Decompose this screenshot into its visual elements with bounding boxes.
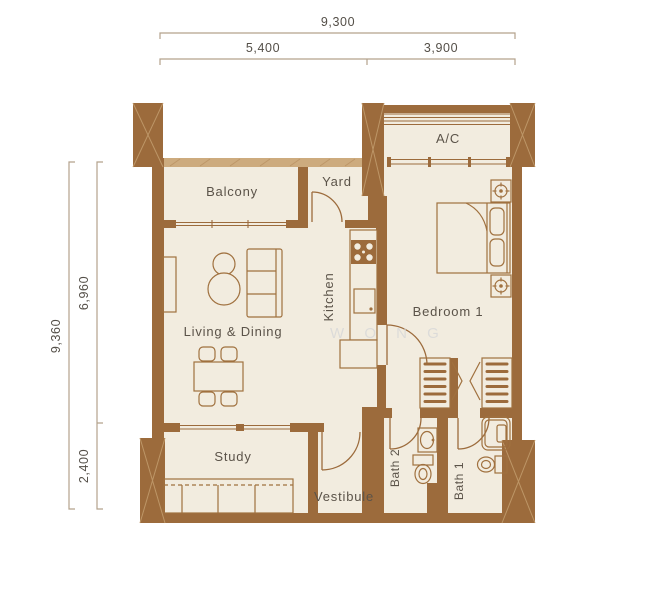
dim-top-left: 5,400 xyxy=(246,41,280,55)
dining-table xyxy=(194,362,243,391)
dimension-top: 9,300 5,400 3,900 xyxy=(160,15,515,65)
wall-top-louvre xyxy=(164,158,362,167)
bedroom-window-tick xyxy=(428,157,431,167)
dim-side-upper: 6,960 xyxy=(77,276,91,310)
dim-side-total: 9,360 xyxy=(49,319,63,353)
bedroom-window-tick xyxy=(506,157,510,167)
bedroom-window-tick xyxy=(387,157,391,167)
floor-plan: 9,300 5,400 3,900 9,360 6,960 2,400 xyxy=(0,0,650,600)
wall-ac-top xyxy=(362,105,522,113)
label-study: Study xyxy=(214,449,251,464)
wall-bath-divider-block xyxy=(427,483,448,513)
label-vestibule: Vestibule xyxy=(314,489,374,504)
label-balcony: Balcony xyxy=(206,184,258,199)
study-window-cap xyxy=(290,423,308,432)
watermark-text: W O N G xyxy=(330,325,447,342)
armchair-round xyxy=(213,253,235,275)
stove-icon xyxy=(351,240,376,264)
armchair-round-large xyxy=(208,273,240,305)
label-living-dining: Living & Dining xyxy=(184,324,283,339)
dimension-left: 9,360 6,960 2,400 xyxy=(49,162,103,509)
label-ac: A/C xyxy=(436,131,460,146)
wall-corridor xyxy=(377,365,386,408)
dining-chair xyxy=(199,347,215,361)
label-yard: Yard xyxy=(322,174,352,189)
balcony-window-cap xyxy=(286,220,298,228)
bedroom-window-tick xyxy=(468,157,471,167)
wall-bottom xyxy=(140,513,535,523)
dining-chair xyxy=(221,392,237,406)
wall-kitchen-bedroom xyxy=(376,196,387,325)
floor-plan-drawing: 9,300 5,400 3,900 9,360 6,960 2,400 xyxy=(0,0,650,600)
wall-bath2-top xyxy=(420,408,437,418)
label-bath2: Bath 2 xyxy=(388,449,402,487)
wall-balcony-yard xyxy=(298,158,308,228)
bed xyxy=(437,203,510,273)
study-window-cap xyxy=(164,423,180,432)
dim-top-right: 3,900 xyxy=(424,41,458,55)
label-bath1: Bath 1 xyxy=(452,462,466,500)
dim-side-lower: 2,400 xyxy=(77,449,91,483)
kitchen-cabinet xyxy=(340,340,377,368)
dim-top-total: 9,300 xyxy=(321,15,355,29)
dining-chair xyxy=(221,347,237,361)
label-bedroom1: Bedroom 1 xyxy=(413,304,484,319)
wall-bath1-stub xyxy=(448,408,458,418)
label-kitchen: Kitchen xyxy=(321,273,336,322)
wall-bath2-stub xyxy=(384,408,392,418)
dining-chair xyxy=(199,392,215,406)
balcony-window-cap xyxy=(164,220,176,228)
